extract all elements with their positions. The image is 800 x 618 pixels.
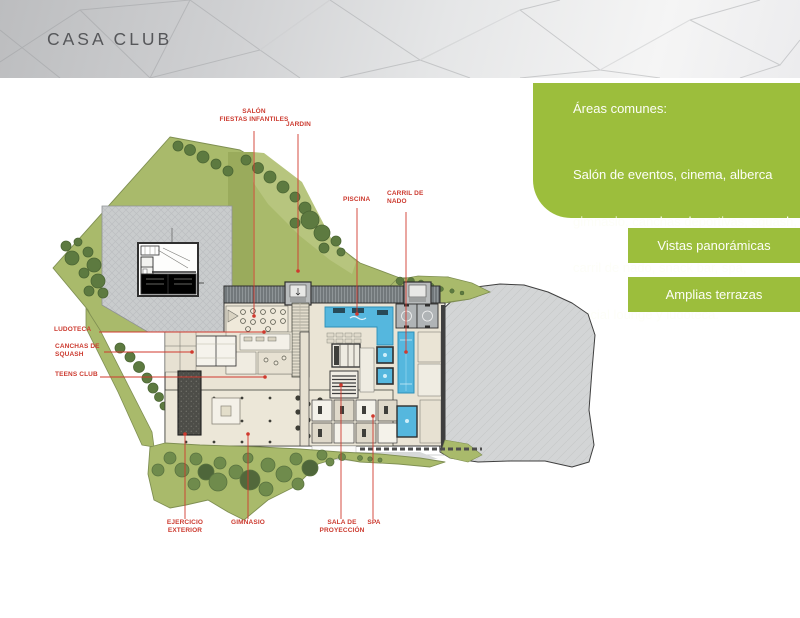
site-plan: [0, 0, 800, 618]
slide: CASA CLUB Áreas comunes: Salón de evento…: [0, 0, 800, 618]
east-wall: [441, 305, 445, 452]
label-gimnasio: GIMNASIO: [226, 519, 270, 527]
label-ludoteca: LUDOTECA: [54, 326, 91, 334]
label-spa: SPA: [363, 519, 385, 527]
label-jardin: JARDIN: [286, 121, 311, 129]
label-ejercicio-exterior: EJERCICIOEXTERIOR: [158, 519, 212, 536]
label-salon-fiestas: SALÓNFIESTAS INFANTILES: [215, 108, 293, 125]
paved-plaza: [102, 206, 232, 332]
entrance-pavilion-east: [404, 282, 431, 305]
label-teens-club: TEENS CLUB: [55, 371, 98, 379]
label-sala-proyeccion: SALA DEPROYECCIÓN: [314, 519, 370, 536]
teens-club-block: [178, 371, 201, 435]
label-carril-de-nado: CARRIL DENADO: [387, 190, 423, 207]
squash-courts: [196, 336, 236, 366]
projection-room: [330, 371, 358, 398]
label-piscina: PISCINA: [343, 196, 370, 204]
kids-party-room: [226, 306, 288, 332]
sport-courts: [396, 304, 438, 328]
entrance-pavilion-west: [285, 282, 311, 305]
label-canchas-squash: CANCHAS DESQUASH: [55, 343, 100, 360]
